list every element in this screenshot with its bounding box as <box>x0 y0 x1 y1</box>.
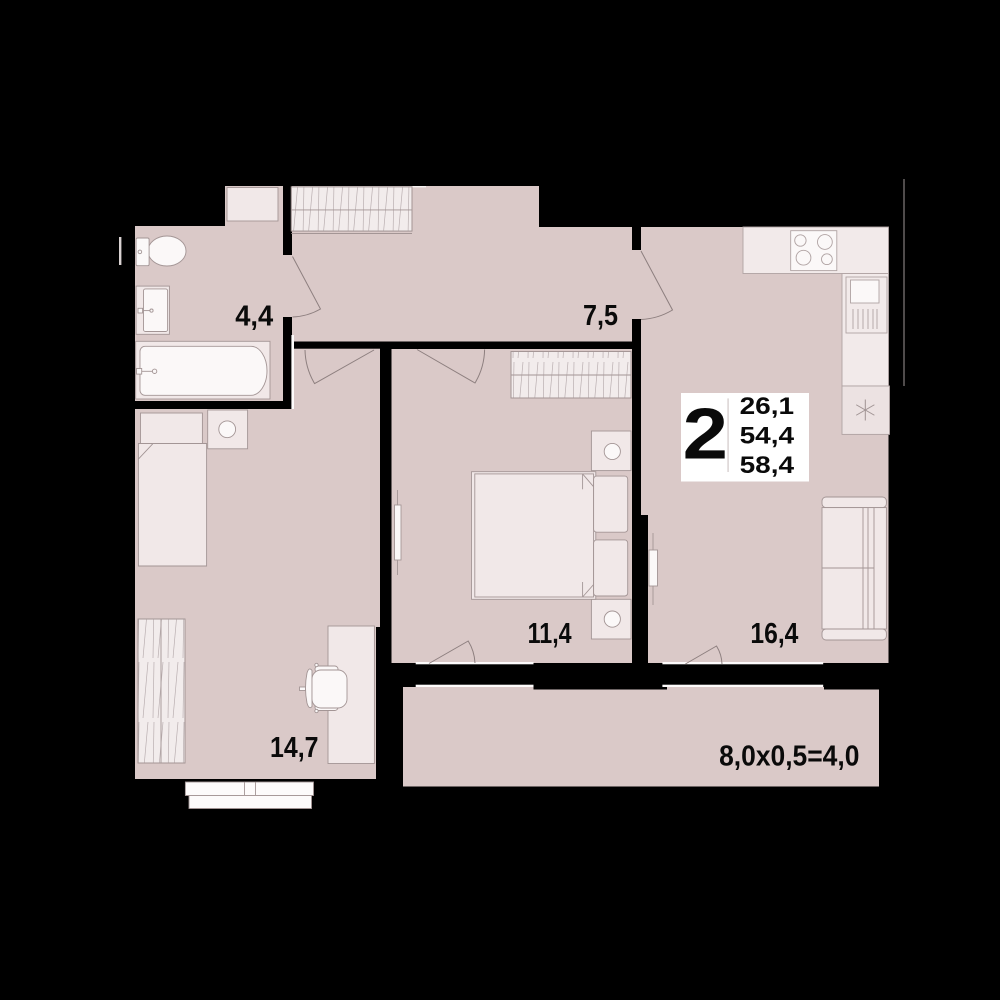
svg-text:2: 2 <box>683 394 728 474</box>
svg-text:16,4: 16,4 <box>750 618 798 650</box>
svg-text:54,4: 54,4 <box>740 423 795 450</box>
svg-text:4,4: 4,4 <box>235 301 273 333</box>
svg-text:14,7: 14,7 <box>270 732 319 764</box>
svg-text:58,4: 58,4 <box>740 452 795 479</box>
svg-text:11,4: 11,4 <box>528 618 572 650</box>
svg-text:7,5: 7,5 <box>583 300 618 332</box>
svg-text:8,0x0,5=4,0: 8,0x0,5=4,0 <box>719 741 859 773</box>
svg-text:26,1: 26,1 <box>740 393 795 420</box>
